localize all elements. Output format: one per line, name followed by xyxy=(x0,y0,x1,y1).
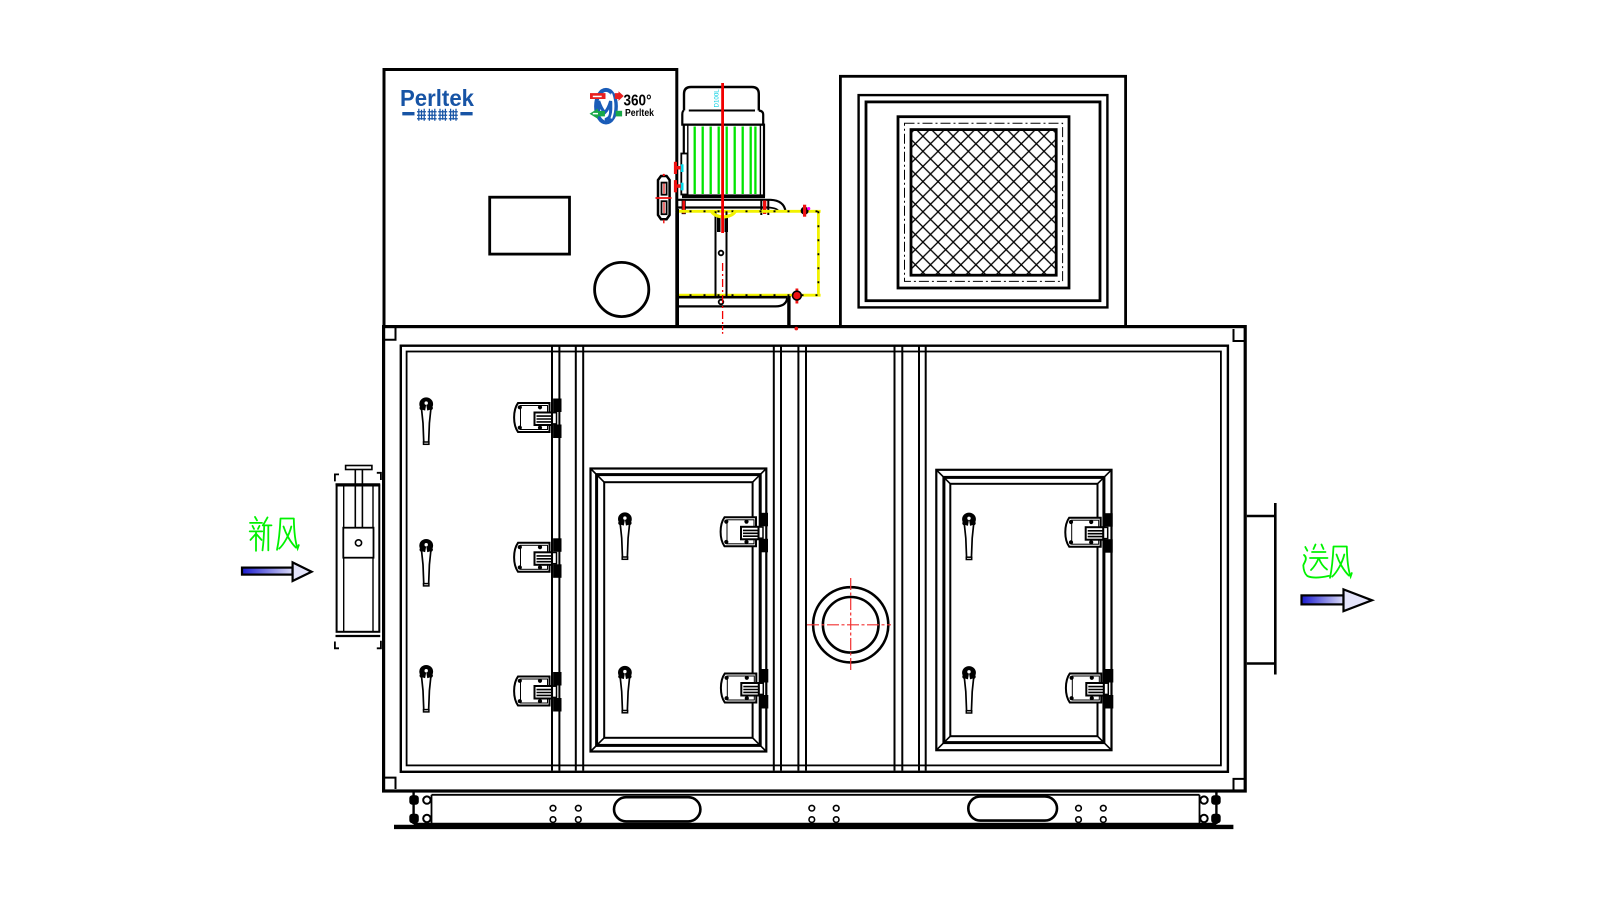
svg-text:Perltek: Perltek xyxy=(400,85,474,111)
svg-text:360°: 360° xyxy=(624,93,652,110)
svg-text:Perltek: Perltek xyxy=(625,108,654,119)
svg-text:D100L: D100L xyxy=(714,89,721,108)
